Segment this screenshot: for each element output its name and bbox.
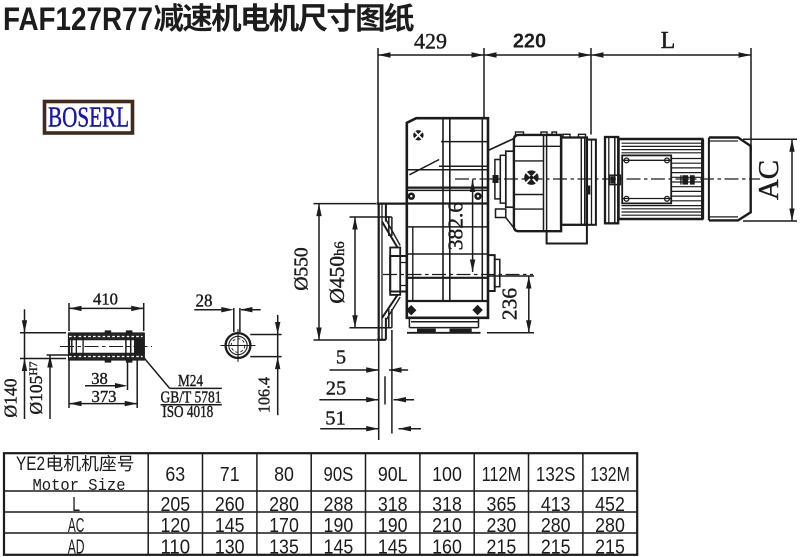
svg-text:429: 429 bbox=[414, 29, 447, 54]
svg-text:L: L bbox=[72, 494, 80, 516]
svg-text:AC: AC bbox=[68, 515, 85, 537]
svg-text:365: 365 bbox=[487, 494, 517, 516]
svg-text:130: 130 bbox=[215, 536, 245, 557]
svg-text:288: 288 bbox=[324, 494, 354, 516]
svg-text:236: 236 bbox=[498, 288, 522, 321]
svg-text:318: 318 bbox=[378, 494, 408, 516]
svg-text:L: L bbox=[661, 28, 676, 54]
svg-text:373: 373 bbox=[92, 387, 117, 406]
svg-text:FAF127R77: FAF127R77 bbox=[3, 1, 153, 37]
svg-text:170: 170 bbox=[269, 515, 299, 537]
svg-text:413: 413 bbox=[541, 494, 571, 516]
svg-text:80: 80 bbox=[274, 464, 294, 486]
svg-text:AC: AC bbox=[753, 160, 785, 200]
svg-text:410: 410 bbox=[93, 290, 118, 309]
svg-text:38: 38 bbox=[91, 369, 108, 388]
svg-text:145: 145 bbox=[215, 515, 245, 537]
svg-text:135: 135 bbox=[269, 536, 299, 557]
svg-text:51: 51 bbox=[325, 408, 346, 430]
svg-text:106.4: 106.4 bbox=[255, 377, 274, 413]
svg-text:220: 220 bbox=[513, 31, 546, 53]
svg-text:ISO 4018: ISO 4018 bbox=[162, 402, 213, 421]
svg-text:Ø550: Ø550 bbox=[292, 247, 313, 290]
svg-text:280: 280 bbox=[595, 515, 625, 537]
svg-text:382.6: 382.6 bbox=[444, 202, 468, 251]
svg-text:215: 215 bbox=[487, 536, 517, 557]
svg-text:145: 145 bbox=[324, 536, 354, 557]
svg-text:90S: 90S bbox=[324, 464, 354, 486]
svg-text:YE2: YE2 bbox=[16, 454, 45, 475]
svg-text:230: 230 bbox=[487, 515, 517, 537]
svg-text:160: 160 bbox=[432, 536, 462, 557]
svg-text:452: 452 bbox=[595, 494, 625, 516]
svg-text:132M: 132M bbox=[590, 464, 630, 486]
svg-text:260: 260 bbox=[215, 494, 245, 516]
svg-text:120: 120 bbox=[160, 515, 190, 537]
svg-text:28: 28 bbox=[196, 291, 213, 311]
svg-text:210: 210 bbox=[432, 515, 462, 537]
svg-text:Ø140: Ø140 bbox=[1, 378, 21, 417]
svg-text:AD: AD bbox=[68, 536, 85, 557]
svg-text:190: 190 bbox=[378, 515, 408, 537]
svg-text:110: 110 bbox=[160, 536, 190, 557]
svg-text:280: 280 bbox=[541, 515, 571, 537]
svg-text:215: 215 bbox=[595, 536, 625, 557]
svg-text:90L: 90L bbox=[378, 464, 408, 486]
svg-text:112M: 112M bbox=[482, 464, 522, 486]
svg-text:318: 318 bbox=[432, 494, 462, 516]
svg-text:190: 190 bbox=[324, 515, 354, 537]
svg-text:145: 145 bbox=[378, 536, 408, 557]
svg-text:205: 205 bbox=[160, 494, 190, 516]
svg-text:25: 25 bbox=[326, 378, 347, 400]
svg-text:215: 215 bbox=[541, 536, 571, 557]
svg-text:132S: 132S bbox=[536, 464, 576, 486]
svg-text:63: 63 bbox=[165, 464, 185, 486]
svg-text:BOSERL: BOSERL bbox=[48, 103, 129, 134]
svg-text:5: 5 bbox=[336, 347, 346, 369]
svg-text:100: 100 bbox=[432, 464, 462, 486]
svg-text:71: 71 bbox=[220, 464, 240, 486]
svg-text:280: 280 bbox=[269, 494, 299, 516]
